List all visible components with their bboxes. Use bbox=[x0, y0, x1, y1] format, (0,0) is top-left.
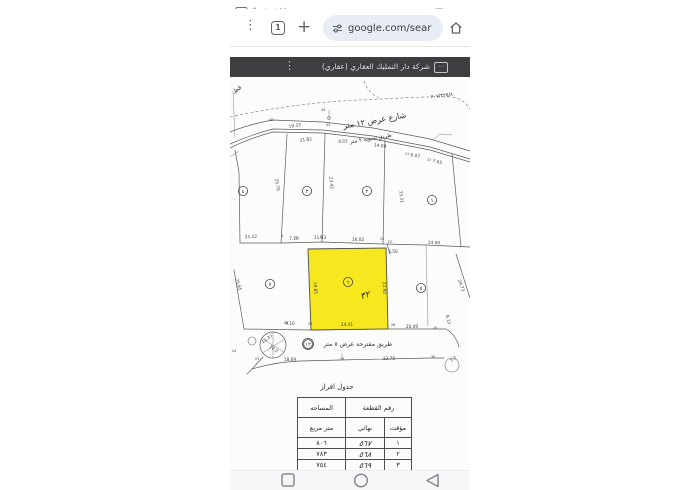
dimension-label: 19.33 bbox=[288, 122, 301, 130]
dimension-label: 25.76 bbox=[273, 178, 281, 191]
survey-map-image[interactable]: شارع عرض ١٢ متر طريق تسوية ٢ متر طريق مق… bbox=[230, 77, 470, 470]
home-nav-button[interactable] bbox=[355, 474, 368, 487]
plot-divider-2 bbox=[322, 134, 325, 242]
plot-divider-1 bbox=[281, 134, 287, 243]
phone-screen: 11:50 ⋮ 1 + google.com/sear bbox=[230, 0, 470, 490]
point-label: 26 bbox=[391, 323, 395, 327]
table-title: جدول افراز bbox=[292, 383, 382, 391]
point-label: 37 bbox=[427, 158, 431, 162]
plot-number-label: ٦ bbox=[347, 280, 350, 286]
road8-bottom-line bbox=[252, 358, 444, 369]
road-2m-label: طريق تسوية ٢ متر bbox=[348, 133, 392, 146]
road8-right-curve bbox=[446, 329, 459, 347]
sub-col-temporary: مؤقت bbox=[385, 418, 412, 438]
document-viewer-header: ⋮ شركة دار التمليك العقاري (عقاري) ⋯ bbox=[230, 57, 470, 77]
reference-number: ٢٠٧/٣٢٥/٨ bbox=[430, 91, 453, 100]
dimension-label: 5.50 bbox=[388, 249, 398, 255]
point-label: 45 bbox=[269, 118, 273, 122]
dimension-label: 24.41 bbox=[341, 322, 354, 328]
road-jog bbox=[433, 134, 452, 140]
dimension-label: 11.37 bbox=[261, 333, 275, 345]
block-left-edge bbox=[235, 150, 240, 243]
col-area: المساحه bbox=[298, 398, 346, 418]
point-label: 23 bbox=[380, 237, 384, 241]
road-edge-south bbox=[230, 132, 470, 162]
benchmark-point bbox=[328, 117, 331, 120]
dimension-label: 4.07 bbox=[338, 139, 348, 145]
dimension-label: 20.49 bbox=[406, 324, 419, 330]
cell-area: ٨٠٦ bbox=[298, 438, 346, 449]
home-icon bbox=[449, 21, 463, 35]
plot-number-label: ٧ bbox=[269, 282, 272, 288]
point-label: 8 bbox=[320, 235, 322, 239]
status-bar: 11:50 bbox=[230, 0, 470, 9]
cell-final-number: ٥٦٨ bbox=[346, 449, 385, 460]
block-right-edge bbox=[452, 154, 461, 247]
left-corner-line bbox=[230, 151, 239, 157]
dimension-label: 8.12 bbox=[444, 314, 452, 325]
cell-temporary-number: ٢ bbox=[385, 449, 412, 460]
screenshot-root: 11:50 ⋮ 1 + google.com/sear bbox=[0, 0, 700, 490]
point-label: 43 bbox=[326, 123, 330, 127]
plot5-right-edge bbox=[426, 245, 428, 326]
culdesac-spokes bbox=[261, 332, 285, 358]
viewer-menu-icon[interactable]: ⋮ bbox=[284, 60, 295, 72]
dimension-label: 5.2 bbox=[449, 355, 458, 364]
table-row: ٣٥٦٩٧٥٤ bbox=[298, 460, 412, 471]
table-row: ١٥٦٧٨٠٦ bbox=[298, 438, 412, 449]
road-8m-label: طريق مقترحة عرض ٨ متر bbox=[323, 341, 393, 348]
dimension-label: 23.42 bbox=[327, 176, 334, 189]
cell-area: ٧٥٤ bbox=[298, 460, 346, 471]
tune-icon bbox=[332, 23, 343, 34]
dimension-label: 25.65 bbox=[233, 278, 243, 292]
plot-number-label: ١ bbox=[431, 198, 434, 204]
dimension-label: 7.65 bbox=[432, 158, 443, 166]
cell-temporary-number: ١ bbox=[385, 438, 412, 449]
partition-table: رقم القطعة المساحه مؤقت نهائي متر مربع ١… bbox=[297, 397, 412, 470]
back-button[interactable] bbox=[427, 475, 438, 487]
highlighted-plot bbox=[308, 248, 388, 330]
cell-final-number: ٥٦٩ bbox=[346, 460, 385, 471]
col-plot-number: رقم القطعة bbox=[346, 398, 412, 418]
android-nav-bar bbox=[230, 470, 470, 490]
point-label: 29 bbox=[284, 321, 288, 325]
recents-button[interactable] bbox=[282, 474, 294, 486]
point-label: 18 bbox=[433, 326, 437, 330]
corner-word: قطـ bbox=[230, 84, 243, 96]
browser-menu-icon[interactable]: ⋮ bbox=[244, 19, 257, 32]
point-label: 28 bbox=[308, 322, 312, 326]
street-12m-label: شارع عرض ١٢ متر bbox=[341, 111, 407, 131]
plot-number-label: ٤ bbox=[242, 189, 245, 195]
point-label: 5 bbox=[295, 236, 297, 240]
plot-number-label: ٢ bbox=[366, 189, 369, 195]
point-label: 24 bbox=[232, 349, 236, 353]
browser-toolbar: ⋮ 1 + google.com/sear bbox=[230, 9, 470, 47]
dimension-label: 24.00 bbox=[428, 240, 441, 246]
point-label: 4 bbox=[281, 234, 283, 238]
cell-temporary-number: ٣ bbox=[385, 460, 412, 471]
dimension-label: 22.92 bbox=[381, 282, 388, 295]
tab-switcher-button[interactable]: 1 bbox=[271, 21, 285, 35]
street-centerline-branch bbox=[364, 81, 379, 98]
image-placeholder-icon: ⋯ bbox=[434, 62, 448, 73]
dimension-label: 6.07 bbox=[410, 152, 421, 160]
point-label: 23 bbox=[255, 357, 259, 361]
plot-divider-3 bbox=[383, 140, 385, 244]
point-label: 44 bbox=[321, 108, 325, 112]
dimension-label: 32.70 bbox=[383, 356, 396, 362]
dimension-label: 21.22 bbox=[245, 234, 258, 240]
point-label: 11 bbox=[405, 152, 409, 156]
new-tab-button[interactable]: + bbox=[297, 17, 311, 37]
point-label: 19 bbox=[340, 357, 344, 361]
dimension-label: 16.02 bbox=[352, 237, 365, 243]
sub-col-unit: متر مربع bbox=[298, 418, 346, 438]
viewer-title: شركة دار التمليك العقاري (عقاري) bbox=[322, 62, 430, 71]
address-bar[interactable]: google.com/sear bbox=[323, 15, 443, 41]
point-label: 22 bbox=[388, 240, 392, 244]
dimension-label: 18.69 bbox=[284, 357, 297, 363]
table-row: ٢٥٦٨٧٨٣ bbox=[298, 449, 412, 460]
culdesac-loop bbox=[248, 337, 256, 345]
plot-number-label: ٣ bbox=[306, 189, 309, 195]
sub-col-final: نهائي bbox=[346, 418, 385, 438]
address-url: google.com/sear bbox=[348, 23, 440, 34]
cell-final-number: ٥٦٧ bbox=[346, 438, 385, 449]
point-label: 30 bbox=[431, 355, 435, 359]
plot-number-label: ٥ bbox=[420, 286, 423, 292]
home-button[interactable] bbox=[449, 20, 463, 39]
dimension-label: 33.31 bbox=[397, 190, 404, 203]
dimension-label: 19.85 bbox=[312, 282, 319, 295]
plot-number-label: ١٢ bbox=[305, 342, 311, 348]
dimension-label: 21.82 bbox=[299, 136, 312, 143]
cell-area: ٧٨٣ bbox=[298, 449, 346, 460]
